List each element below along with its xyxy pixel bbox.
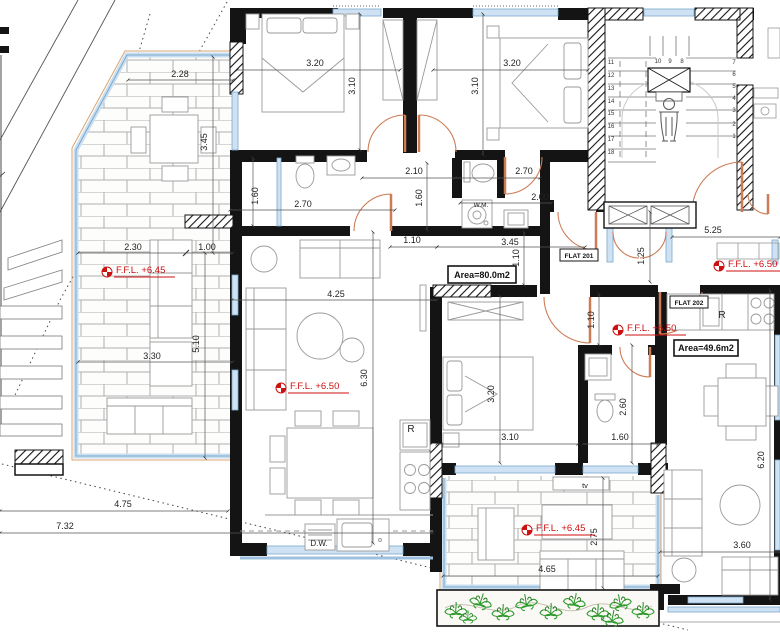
dimension-label: 1.10 <box>586 311 596 329</box>
ffl-level-marker: F.F.L. +6.50 <box>714 259 780 271</box>
appliance-label: R <box>407 424 414 435</box>
stair-step-number: 11 <box>608 60 615 66</box>
tv-unit <box>420 285 426 331</box>
dining-table-2 <box>704 364 778 440</box>
dimension-label: 6.20 <box>756 451 766 469</box>
dimension-label: 3.60 <box>733 540 751 550</box>
ffl-level-marker: F.F.L. +6.50 <box>613 323 686 335</box>
toilet-1 <box>296 156 314 188</box>
side-table <box>251 246 277 272</box>
ffl-level-label: F.F.L. +6.50 <box>728 259 777 270</box>
stair-step-number: 7 <box>732 60 736 66</box>
stair-step-number: 9 <box>668 59 672 65</box>
dining-table-1 <box>270 411 373 515</box>
sink-3 <box>585 354 611 380</box>
dimension-label: 3.30 <box>143 351 161 361</box>
dimension-label: 2.60 <box>618 398 628 416</box>
stair-step-number: 15 <box>608 111 615 117</box>
dimension-label: 4.25 <box>327 289 345 299</box>
dimension-label: 3.20 <box>503 58 521 68</box>
round-table-f202 <box>720 485 760 525</box>
stair-step-number: 1 <box>732 134 736 140</box>
dimension-label: 2.70 <box>515 166 533 176</box>
coffee-table <box>297 313 343 359</box>
toilet-3 <box>595 394 615 422</box>
level-target-icon <box>102 267 112 277</box>
floor-plan-canvas: Area=80.0m2 Area=49.6m2 FLAT 201 FLAT 20… <box>0 0 780 636</box>
area-label-f201: Area=80.0m2 <box>454 270 510 280</box>
appliance-label: R <box>718 310 725 321</box>
dimension-label: 2.70 <box>294 199 312 209</box>
stair-step-number: 8 <box>680 59 684 65</box>
sink-1 <box>327 156 355 175</box>
stair-step-number: 5 <box>732 84 736 90</box>
dimension-label: 5.10 <box>191 335 201 353</box>
wardrobe-f201 <box>448 302 523 320</box>
site-wall-block <box>15 450 63 464</box>
dimension-label: 2.30 <box>124 242 142 252</box>
stair-step-number: 10 <box>655 59 662 65</box>
dimension-label: 5.25 <box>704 225 722 235</box>
elevator-shaft <box>648 68 690 101</box>
dimension-label: 1.10 <box>511 249 521 267</box>
appliance-label: D.W. <box>310 539 327 548</box>
dimension-label: 3.45 <box>501 237 519 247</box>
appliance-label: tv <box>582 481 588 490</box>
sideboard-f202 <box>722 557 778 595</box>
bed-2 <box>487 26 588 140</box>
dimension-label: 1.60 <box>414 189 424 207</box>
stair-step-number: 13 <box>608 86 615 92</box>
ffl-level-label: F.F.L. +6.45 <box>116 265 165 276</box>
dimension-label: 4.75 <box>114 499 132 509</box>
dimension-label: 3.45 <box>199 133 209 151</box>
stair-step-number: 16 <box>608 124 615 130</box>
dimension-label: 3.20 <box>306 58 324 68</box>
staircase <box>604 28 780 259</box>
dimension-label: 7.32 <box>56 521 74 531</box>
dimension-label: 2.00 <box>531 192 549 202</box>
dimension-label: 6.30 <box>359 369 369 387</box>
dimension-label: 4.65 <box>538 564 556 574</box>
floor-plan-page: Area=80.0m2 Area=49.6m2 FLAT 201 FLAT 20… <box>0 0 780 636</box>
exterior-steps <box>0 240 62 436</box>
ffl-level-label: F.F.L. +6.45 <box>536 523 585 534</box>
flat-name-f201: FLAT 201 <box>565 253 594 260</box>
dimension-label: 3.10 <box>501 432 519 442</box>
stair-step-number: 17 <box>608 137 615 143</box>
level-target-icon <box>714 261 724 271</box>
dimension-label: 2.28 <box>171 69 189 79</box>
dimension-label: 3.20 <box>486 385 496 403</box>
dimension-label: 2.10 <box>405 166 423 176</box>
stair-step-number: 3 <box>732 108 736 114</box>
dimension-label: 1.60 <box>250 187 260 205</box>
stair-step-number: 12 <box>608 73 615 79</box>
sofa-f202 <box>664 470 702 556</box>
dimension-label: 3.10 <box>470 77 480 95</box>
person-figure <box>659 99 679 142</box>
bed-1 <box>246 14 359 112</box>
ffl-level-marker: F.F.L. +6.50 <box>276 381 349 393</box>
ffl-level-label: F.F.L. +6.50 <box>290 381 339 392</box>
dimension-label: 2.75 <box>589 528 599 546</box>
area-label-f202: Area=49.6m2 <box>678 343 734 353</box>
flat-name-f202: FLAT 202 <box>675 300 704 307</box>
dimension-label: 3.10 <box>347 77 357 95</box>
level-target-icon <box>613 325 623 335</box>
level-target-icon <box>522 525 532 535</box>
entry-cabinet <box>504 210 528 228</box>
stair-step-number: 18 <box>608 150 615 156</box>
appliance-label: W.M. <box>474 202 489 209</box>
level-target-icon <box>276 383 286 393</box>
shower-glass <box>277 158 281 226</box>
toilet-2 <box>464 162 494 182</box>
dimension-label: 1.00 <box>198 242 216 252</box>
ffl-level-label: F.F.L. +6.50 <box>627 323 676 334</box>
dimension-label: 1.25 <box>636 247 646 265</box>
coffee-table-small <box>340 338 364 362</box>
stair-step-number: 6 <box>732 72 736 78</box>
dimension-label: 1.10 <box>403 235 421 245</box>
stair-step-number: 14 <box>608 99 615 105</box>
dimension-label: 1.60 <box>611 432 629 442</box>
side-table-f202 <box>672 558 696 582</box>
